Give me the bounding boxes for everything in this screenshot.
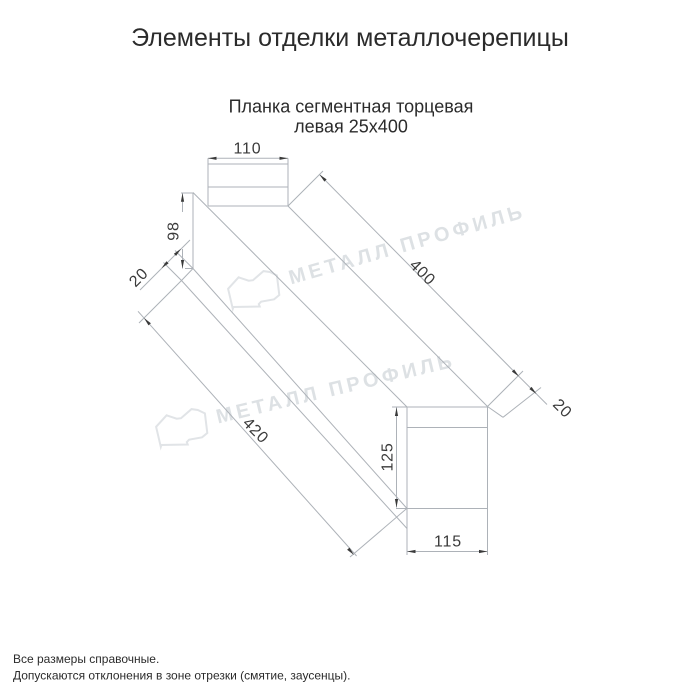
svg-text:98: 98 bbox=[166, 221, 183, 240]
svg-text:левая 25х400: левая 25х400 bbox=[294, 117, 408, 137]
svg-text:Планка сегментная торцевая: Планка сегментная торцевая bbox=[229, 97, 474, 117]
svg-text:Элементы отделки металлочерепи: Элементы отделки металлочерепицы bbox=[131, 24, 569, 52]
svg-text:115: 115 bbox=[434, 534, 462, 551]
svg-text:110: 110 bbox=[234, 140, 262, 157]
svg-text:125: 125 bbox=[380, 442, 397, 471]
svg-text:Допускаются отклонения в зоне: Допускаются отклонения в зоне отрезки (с… bbox=[13, 669, 350, 683]
svg-text:Все размеры справочные.: Все размеры справочные. bbox=[13, 652, 159, 666]
